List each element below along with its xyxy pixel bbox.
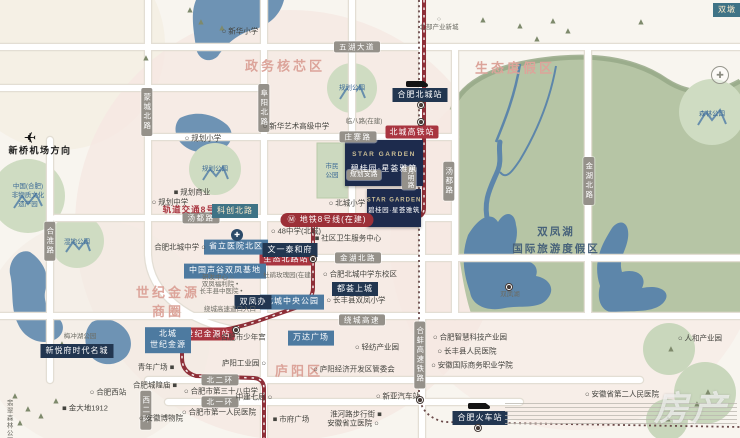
train-icon xyxy=(406,81,428,87)
poi-rose-garden: 杜鹃玫瑰园(在建) xyxy=(263,272,313,280)
label-hefei-railway-station: 合肥火车站 xyxy=(453,411,508,425)
tree-icon: ▲ xyxy=(186,6,195,15)
region-title-eco-resort: 生态度假区 xyxy=(475,60,555,79)
rail-hebeng-hsr: 合蚌高速铁路 xyxy=(414,322,425,389)
poi-provincial-hospital: 安徽省立医院 ○ xyxy=(327,418,379,427)
label-beicheng-shiji-jinyuan: 北城 世纪金源 xyxy=(145,327,191,353)
poi-north-industry-newtown: ○ 北部产业新城 xyxy=(420,16,459,32)
park-planned-1: 规划公园 xyxy=(202,166,228,175)
station-beicheng-hsr: 北城高铁站 xyxy=(386,126,439,139)
watermark: 房产 xyxy=(654,381,730,430)
poi-textile-industry-park: ○ 轻纺产业园 xyxy=(355,342,399,351)
poi-changfeng-tcm-hospital: 长丰县中医院 • xyxy=(199,288,242,296)
label-xinqiao-airport-direction: 新桥机场方向 xyxy=(8,145,71,156)
road-wuhu-avenue: 五湖大道 xyxy=(334,41,380,52)
tree-icon: ▲ xyxy=(479,16,488,25)
label-kechuang-north-road: 科创北路 xyxy=(212,204,258,218)
poi-changfeng-peoples-hospital: ○ 长丰县人民医院 xyxy=(437,346,496,355)
station-dot-icon xyxy=(309,255,317,263)
poi-planned-primary: ○ 规划小学 xyxy=(185,133,222,142)
poi-shuangfeng-lake: 双凤湖 xyxy=(500,291,520,299)
road-linba-road: 临八路(在建) xyxy=(346,118,383,126)
tree-icon: ▲ xyxy=(37,412,46,421)
park-forest: 森林公园 xyxy=(699,111,725,120)
poi-first-peoples-hospital: ○ 合肥市第一人民医院 xyxy=(182,407,256,416)
road-jinhu-north-v: 金湖北路 xyxy=(583,157,594,205)
poi-anhui-museum: ○ 安徽博物院 xyxy=(139,413,183,422)
poi-youth-palace: ○ 合肥市少年宫 xyxy=(214,332,266,341)
poi-renhe-industry-park: ○ 人和产业园 xyxy=(678,333,722,342)
starbox-main-en: STAR GARDEN xyxy=(352,151,416,159)
compass-icon: ✚ xyxy=(711,66,729,84)
tree-icon: ▲ xyxy=(142,54,151,63)
label-xinyuefu-times-city: 新悦府时代名城 xyxy=(41,344,114,358)
tree-icon: ▲ xyxy=(549,17,558,26)
poi-jindadi-1912: ■ 金大地1912 xyxy=(62,403,108,412)
station-dot-icon xyxy=(474,424,482,432)
park-wetland: 湿地公园 xyxy=(64,239,90,248)
tree-icon: ▲ xyxy=(24,405,33,414)
poi-planned-commerce: ■ 规划商业 xyxy=(174,187,211,196)
label-wanda-plaza: 万达广场 xyxy=(288,331,334,346)
poi-government-plaza: ■ 市府广场 xyxy=(273,414,310,423)
tree-icon: ▲ xyxy=(564,27,573,36)
region-title-shuangfeng-lake-resort: 双凤湖 国际旅游度假区 xyxy=(512,224,600,258)
station-dot-icon xyxy=(232,326,240,334)
road-tangdu-road-v: 汤都路 xyxy=(443,162,454,201)
station-dot-icon xyxy=(417,118,425,126)
station-dot-icon xyxy=(417,101,425,109)
road-hehuai-road: 合淮路 xyxy=(44,222,55,261)
starbox-main-cn: 碧桂园·星荟雅筑 xyxy=(351,164,418,174)
label-provincial-hospital-north: 省立医院北区 xyxy=(204,240,268,255)
road-west-2nd-ring: 西二环 xyxy=(140,391,151,430)
poi-zhongjian-7th-bureau: 中建七局 ○ xyxy=(236,392,273,401)
poi-beicheng-middle-east: ○ 合肥北城中学东校区 xyxy=(323,269,397,278)
label-wenyi-taihefu: 文一泰和府 xyxy=(263,243,318,257)
poi-feicui-forest-park: 翡翠森林公园 xyxy=(4,400,12,438)
park-planned-2: 规划公园 xyxy=(339,85,365,94)
road-ring-expressway: 绕城高速 xyxy=(339,314,385,325)
poi-intl-business-college: ○ 安徽国际商务职业学院 xyxy=(431,360,513,369)
park-citizen: 市民 公园 xyxy=(326,163,339,181)
poi-luyang-edz-committee: ○ 庐阳经济开发区管委会 xyxy=(313,364,395,373)
poi-xinya-bus-station: ○ 新亚汽车站 xyxy=(376,391,420,400)
road-north-2nd-ring: 北二环 xyxy=(202,374,239,385)
poi-beicheng-middle: 合肥北城中学 ○ xyxy=(154,242,206,251)
poi-meichong-lake-park: 梅冲湖公园 xyxy=(64,333,97,341)
road-jinhu-north-h: 金湖北路 xyxy=(335,252,381,263)
tree-icon: ▲ xyxy=(516,22,525,31)
poi-community-health-center: ■ 社区卫生服务中心 xyxy=(315,233,382,242)
road-north-1st-ring: 北一环 xyxy=(202,396,239,407)
poi-city-god-temple: 合肥城隍庙 ■ xyxy=(133,380,177,389)
poi-planned-middle: ○ 规划中学 xyxy=(152,197,189,206)
station-dot-icon xyxy=(505,283,513,291)
station-hefei-beicheng-rail: 合肥北城站 xyxy=(393,88,448,102)
label-shuangdun: 双墩 xyxy=(713,3,740,17)
region-title-shiji-jinyuan-cbd: 世纪金源 商圈 xyxy=(136,284,200,322)
poi-second-peoples-hospital: ○ 安徽省第二人民医院 xyxy=(585,389,659,398)
tree-icon: ▲ xyxy=(52,397,61,406)
poi-shuangfeng-primary: ○ 长丰县双凤小学 xyxy=(326,295,385,304)
poi-hefei-west-station: ○ 合肥西站 xyxy=(90,387,127,396)
airplane-icon: ✈ xyxy=(24,129,37,147)
hospital-cross-icon: ✚ xyxy=(231,229,243,241)
starbox-south-cn: 碧桂园·星荟雅筑 xyxy=(368,207,420,215)
road-zhuangzhai-road: 庄寨路 xyxy=(340,131,377,142)
poi-smart-tech-park: ○ 合肥智慧科技产业园 xyxy=(433,332,507,341)
starbox-south-en: STAR GARDEN xyxy=(367,197,422,205)
tree-icon: ▲ xyxy=(197,18,206,27)
tree-icon: ▲ xyxy=(533,35,542,44)
poi-youth-plaza: 青年广场 ■ xyxy=(138,362,175,371)
location-map: 政务核芯区生态度假区世纪金源 商圈庐阳区双凤湖 国际旅游度假区五湖大道蒙城北路阜… xyxy=(0,0,740,438)
poi-xinhua-art-school: ○ 新华艺术高级中学 xyxy=(263,121,330,130)
metro-line8-banner: Ⓜ 地铁8号线(在建) xyxy=(281,213,374,227)
poi-no48-middle: ○ 48中学(北城) xyxy=(271,226,321,235)
label-duhui-shangcheng: 都荟上城 xyxy=(332,282,378,296)
poi-xinhua-primary: ○ 新华小学 xyxy=(222,26,259,35)
tree-icon: ▲ xyxy=(16,419,25,428)
poi-expressway-entrance: 绕城高速道口入口 xyxy=(204,306,256,314)
poi-beicheng-primary: ○ 北城小学 xyxy=(329,198,366,207)
tree-icon: ▲ xyxy=(637,18,646,27)
road-mengcheng-north: 蒙城北路 xyxy=(141,88,152,136)
train-icon xyxy=(468,403,490,409)
park-intangible-heritage: 中国(合肥) 非物质文化 遗产园 xyxy=(12,183,45,209)
region-title-government-core: 政务核芯区 xyxy=(245,58,325,77)
poi-huaihe-walking-street: 淮河路步行街 ■ xyxy=(330,409,382,418)
station-dot-icon xyxy=(416,396,424,404)
map-label-layer: 政务核芯区生态度假区世纪金源 商圈庐阳区双凤湖 国际旅游度假区五湖大道蒙城北路阜… xyxy=(0,0,740,438)
poi-luyang-industrial-park: 庐阳工业园 ○ xyxy=(222,358,266,367)
tree-icon: ▲ xyxy=(667,345,676,354)
